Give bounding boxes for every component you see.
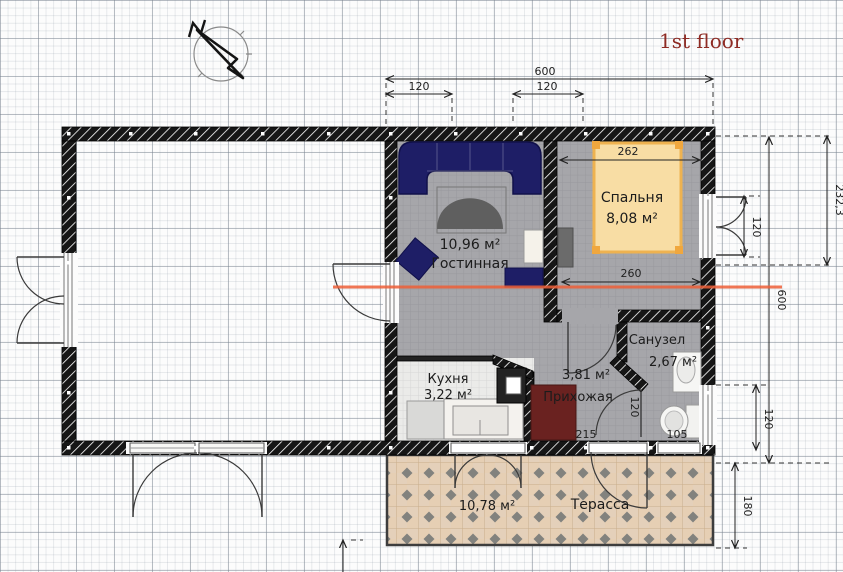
- dim-toilet-width-label: 105: [667, 428, 688, 441]
- garage-bottom-door-arc-left: [133, 453, 197, 517]
- front-door-panel: [589, 443, 647, 453]
- bedroom-door-opening: [562, 308, 618, 324]
- bedroom-window-leaves: [716, 197, 746, 255]
- tv: [558, 228, 573, 267]
- hallway-area-label: 3,81 м²: [562, 368, 610, 383]
- armchair: [505, 268, 543, 287]
- compass-needle: [197, 30, 243, 78]
- dim-terrace-depth-label: 180: [741, 496, 754, 517]
- dim-top-right-ext: [513, 98, 583, 125]
- terrace-name-label: Терасса: [570, 497, 630, 513]
- bedroom-window-arc-bottom: [716, 227, 746, 255]
- floor-plan-drawing: 600 120 120 262 260 232,3 600 120 120 18…: [0, 0, 843, 572]
- terrace-area-label: 10,78 м²: [459, 499, 515, 514]
- dim-top-total-label: 600: [535, 65, 556, 78]
- dim-bed-foot-label: 260: [621, 267, 642, 280]
- dim-bedroom-window-label: 120: [750, 217, 763, 238]
- bedroom-name-label: Спальня: [601, 190, 663, 206]
- wall-kitchen-top-thin: [397, 356, 493, 361]
- north-arrow-icon: [189, 20, 252, 81]
- kitchen-terrace-door-panel: [451, 443, 525, 453]
- dim-bath-door-label: 120: [628, 397, 641, 418]
- bed-corner-bl: [592, 246, 600, 254]
- fridge: [407, 401, 444, 439]
- terrace-tiles: [387, 455, 713, 545]
- kitchen-area-label: 3,22 м²: [424, 388, 472, 403]
- tv-stand: [524, 230, 543, 263]
- bed-corner-br: [675, 246, 683, 254]
- bed-corner-tl: [592, 141, 600, 149]
- stove-burner: [506, 377, 521, 394]
- living-area-label: 10,96 м²: [440, 237, 501, 253]
- bedroom-area-label: 8,08 м²: [606, 211, 658, 227]
- dim-top-right-label: 120: [537, 80, 558, 93]
- dim-bed-head-label: 262: [618, 145, 639, 158]
- living-name-label: Гостинная: [431, 256, 508, 272]
- wall-hallway-bathroom: [617, 322, 627, 362]
- hallway-name-label: Прихожая: [543, 390, 613, 405]
- terrace: [387, 455, 713, 545]
- bed-corner-tr: [675, 141, 683, 149]
- dim-top-left-label: 120: [409, 80, 430, 93]
- garage-bottom-door-arc-right: [198, 453, 262, 517]
- bathroom-name-label: Санузел: [629, 333, 685, 348]
- dim-right-total-label: 600: [775, 290, 788, 311]
- page-title: 1st floor: [659, 29, 744, 53]
- dim-right-upper-ext: [716, 136, 833, 265]
- garage-bottom-door-leaves: [133, 454, 262, 517]
- garage-left-door-leaves: [17, 257, 64, 343]
- dim-right-upper-label: 232,3: [833, 184, 843, 216]
- bathroom-bottom-window-panel: [658, 443, 700, 453]
- floor-plan-page: 600 120 120 262 260 232,3 600 120 120 18…: [0, 0, 843, 572]
- bedroom-window-arc-top: [716, 197, 746, 227]
- wall-top: [62, 127, 715, 141]
- wall-living-bedroom: [544, 141, 557, 322]
- living-door-arc: [333, 264, 390, 321]
- dim-hallway-width-label: 215: [576, 428, 597, 441]
- dim-bathroom-window-label: 120: [762, 409, 775, 430]
- living-door-opening: [383, 262, 399, 323]
- garage-left-door-opening: [60, 253, 78, 347]
- kitchen-name-label: Кухня: [428, 372, 469, 387]
- bathroom-area-label: 2,67 м²: [649, 355, 697, 370]
